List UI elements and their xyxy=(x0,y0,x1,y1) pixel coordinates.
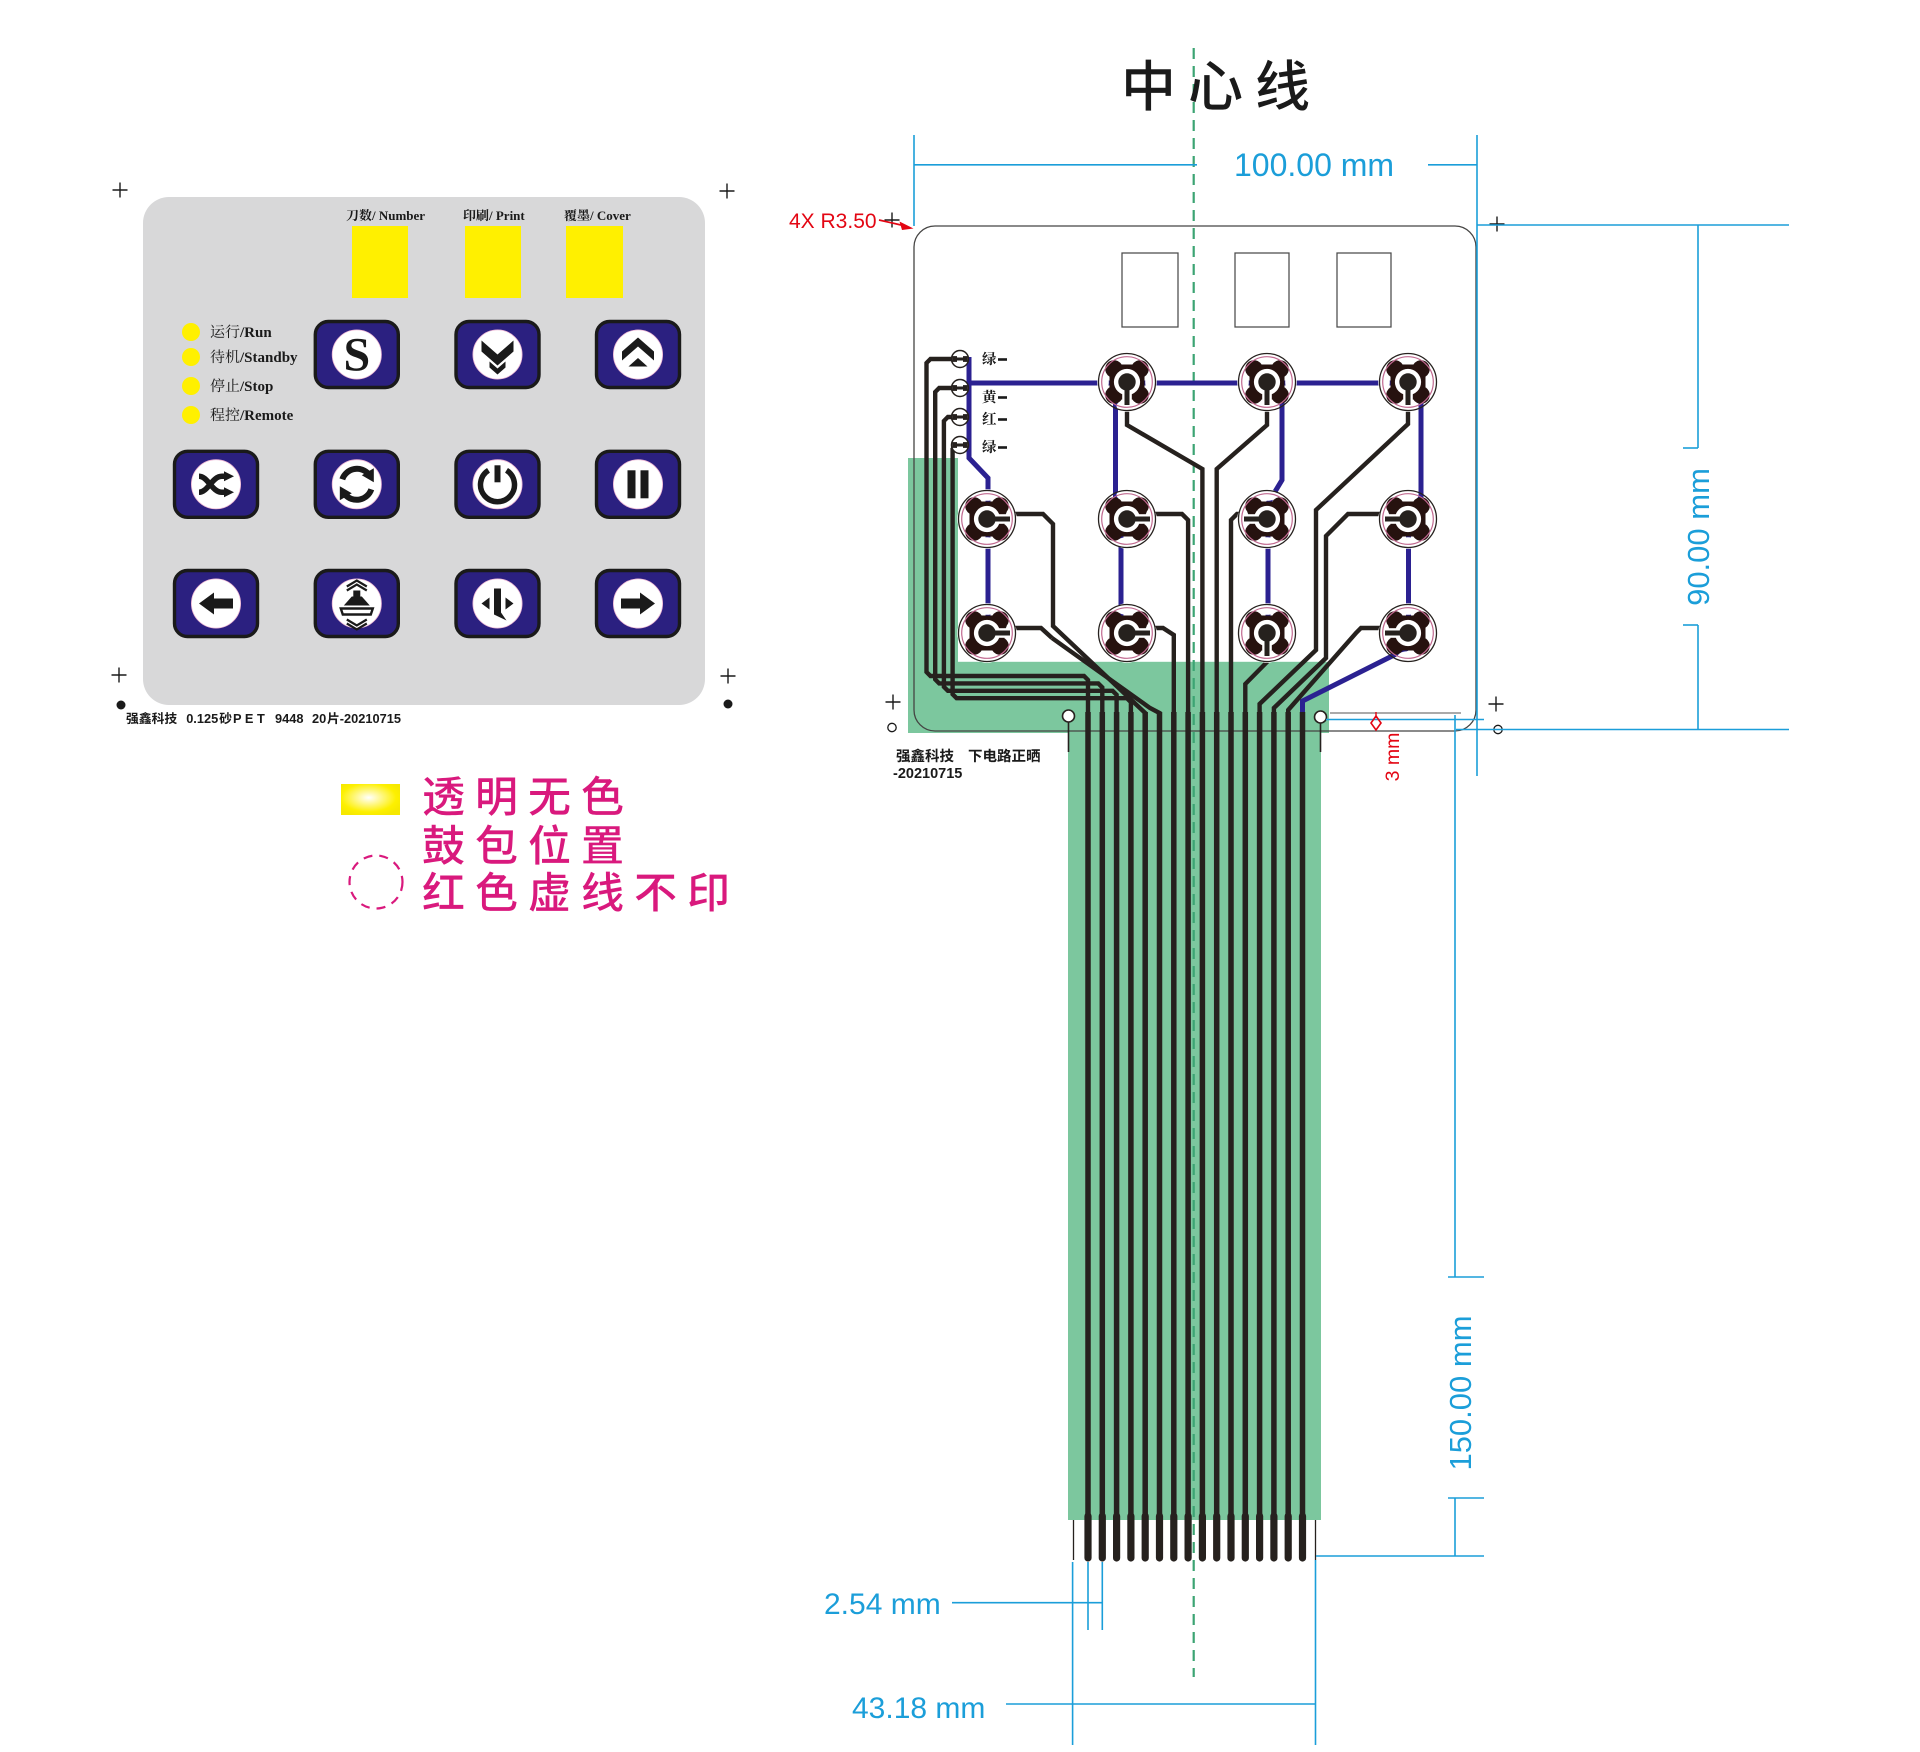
svg-text:90.00 mm: 90.00 mm xyxy=(1681,468,1716,606)
svg-text:/Run: /Run xyxy=(239,325,272,341)
svg-text:4X R3.50: 4X R3.50 xyxy=(789,210,877,233)
svg-text:150.00 mm: 150.00 mm xyxy=(1443,1315,1478,1470)
svg-text:/Stop: /Stop xyxy=(239,379,273,395)
svg-text:100.00 mm: 100.00 mm xyxy=(1234,147,1394,183)
svg-text:/Remote: /Remote xyxy=(239,408,294,424)
svg-text:20: 20 xyxy=(312,711,326,726)
svg-text:-20210715: -20210715 xyxy=(893,766,962,782)
svg-text:2.54 mm: 2.54 mm xyxy=(824,1588,941,1621)
svg-text:0.125: 0.125 xyxy=(186,711,218,726)
svg-text:9448: 9448 xyxy=(275,711,303,726)
svg-text:43.18 mm: 43.18 mm xyxy=(852,1692,985,1725)
svg-text:3 mm: 3 mm xyxy=(1382,733,1404,782)
svg-text:/ Cover: / Cover xyxy=(589,208,631,223)
svg-text:S: S xyxy=(343,329,370,382)
svg-text:/ Number: / Number xyxy=(371,208,425,223)
svg-text:P E T: P E T xyxy=(233,711,265,726)
svg-text:/Standby: /Standby xyxy=(239,350,298,366)
svg-text:-20210715: -20210715 xyxy=(340,711,401,726)
svg-text:/ Print: / Print xyxy=(488,208,525,223)
